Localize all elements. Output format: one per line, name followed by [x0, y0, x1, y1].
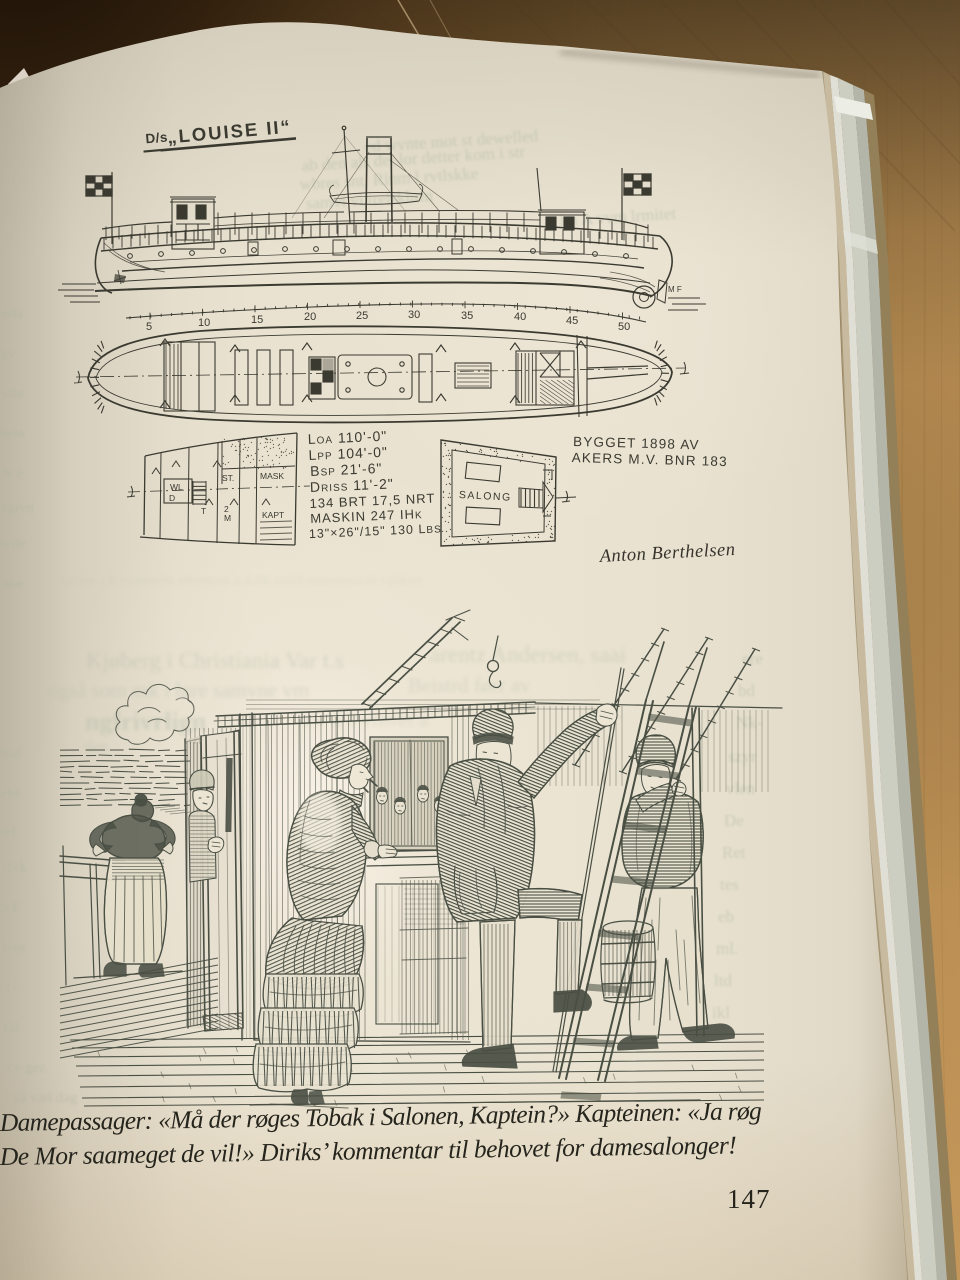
svg-text:tvE: tvE: [0, 900, 21, 916]
svg-text:10: 10: [198, 317, 210, 329]
svg-text:ngfrivrlign: ngfrivrlign: [85, 707, 207, 736]
svg-text:ngivn: ngivn: [0, 500, 35, 516]
svg-text:D/s: D/s: [145, 129, 169, 146]
svg-text:eb: eb: [718, 907, 734, 926]
svg-text:ml.: ml.: [716, 939, 738, 958]
svg-text:ce gez: ce gez: [8, 1060, 46, 1076]
svg-text:slbr: slbr: [2, 386, 25, 402]
svg-text:tål: tål: [4, 1020, 19, 1036]
svg-text:D: D: [169, 493, 175, 503]
svg-text:ltd: ltd: [714, 971, 732, 990]
svg-text:30: 30: [408, 309, 420, 321]
svg-text:ST.: ST.: [222, 473, 234, 483]
svg-text:-Ivk: -Ivk: [2, 860, 27, 876]
svg-text:45: 45: [566, 315, 578, 327]
svg-text:ikl: ikl: [712, 1003, 730, 1022]
svg-text:setem i Kvsmemht ettersom a: setem i Kvsmemht ettersom a 4.0k solid e…: [62, 573, 423, 589]
svg-text:20: 20: [304, 311, 316, 323]
svg-text:M F: M F: [668, 285, 682, 294]
svg-text:N e: N e: [2, 466, 24, 482]
svg-text:35: 35: [461, 310, 473, 322]
svg-text:tes: tes: [720, 875, 739, 894]
svg-text:eda: eda: [2, 306, 23, 322]
svg-text:50: 50: [618, 321, 630, 333]
svg-text:T: T: [201, 506, 206, 516]
svg-text:eM: eM: [0, 786, 20, 802]
svg-text:lvde: lvde: [0, 536, 26, 552]
svg-text:lvm: lvm: [2, 940, 26, 956]
svg-text:MASK: MASK: [260, 471, 284, 481]
svg-text:gv: gv: [0, 346, 16, 362]
svg-text:(1-: (1-: [0, 980, 18, 996]
svg-text:15: 15: [251, 314, 263, 326]
svg-text:De: De: [724, 811, 744, 830]
svg-text:Nk-: Nk-: [736, 713, 763, 732]
svg-text:KAPT: KAPT: [262, 510, 284, 520]
svg-text:Kjøberg i Christiania Var t.s: Kjøberg i Christiania Var t.s: [86, 648, 344, 673]
svg-text:hete: hete: [0, 426, 25, 442]
svg-text:bsd: bsd: [0, 746, 21, 762]
svg-text:147: 147: [727, 1184, 771, 1214]
svg-text:5: 5: [146, 321, 152, 333]
svg-text:Ret: Ret: [722, 843, 746, 862]
svg-text:M: M: [224, 513, 231, 523]
svg-text:ake: ake: [2, 576, 23, 592]
svg-text:40: 40: [514, 311, 526, 323]
svg-text:WL: WL: [170, 482, 183, 492]
svg-text:rel: rel: [0, 824, 16, 840]
svg-text:bd: bd: [738, 681, 756, 700]
svg-text:den: den: [84, 737, 109, 756]
svg-text:25: 25: [356, 310, 368, 322]
svg-text:så vad dag: så vad dag: [14, 1090, 78, 1106]
svg-text:vlen: vlen: [726, 779, 756, 798]
svg-text:arentz Andersen, saai: arentz Andersen, saai: [430, 642, 626, 667]
svg-text:Beistrd førr av: Beistrd førr av: [408, 673, 531, 697]
